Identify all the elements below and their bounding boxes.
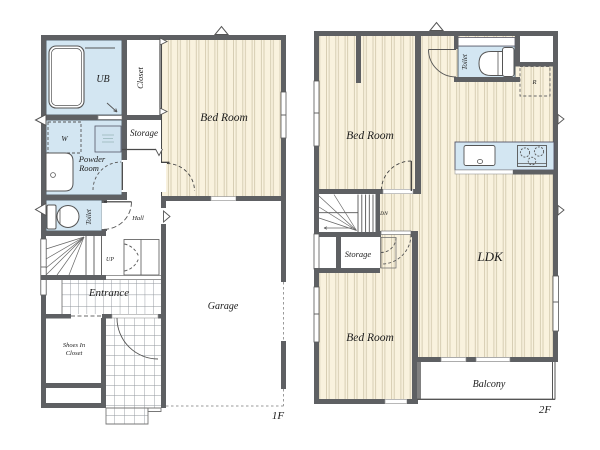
svg-text:Balcony: Balcony xyxy=(473,379,506,390)
svg-text:Toilet: Toilet xyxy=(461,53,469,70)
svg-text:Room: Room xyxy=(78,163,99,173)
svg-text:DN: DN xyxy=(379,211,388,217)
svg-text:LDK: LDK xyxy=(476,249,504,264)
svg-text:Closet: Closet xyxy=(135,67,145,89)
svg-text:Bed Room: Bed Room xyxy=(346,130,394,142)
svg-text:Garage: Garage xyxy=(208,301,239,312)
svg-text:Bed Room: Bed Room xyxy=(346,332,394,344)
svg-text:1F: 1F xyxy=(272,410,285,422)
svg-text:W: W xyxy=(61,134,68,143)
svg-text:Storage: Storage xyxy=(130,128,158,138)
svg-text:UB: UB xyxy=(96,74,109,85)
svg-text:Toilet: Toilet xyxy=(85,208,93,225)
svg-text:Storage: Storage xyxy=(345,249,372,259)
svg-text:Hall: Hall xyxy=(131,215,144,222)
svg-text:Closet: Closet xyxy=(66,350,83,357)
svg-text:Shoes In: Shoes In xyxy=(63,342,85,349)
svg-text:Bed Room: Bed Room xyxy=(200,112,248,124)
svg-text:2F: 2F xyxy=(539,404,552,416)
svg-text:Entrance: Entrance xyxy=(88,287,129,299)
svg-text:R: R xyxy=(532,79,537,86)
svg-text:UP: UP xyxy=(106,257,114,263)
